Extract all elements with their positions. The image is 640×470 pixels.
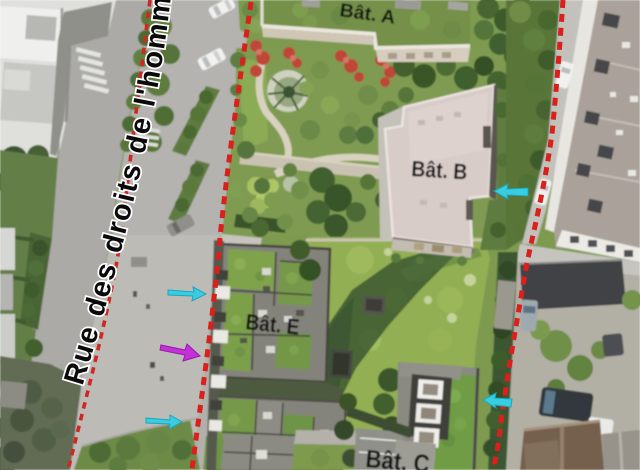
- svg-text:Bât. B: Bât. B: [411, 156, 468, 184]
- svg-text:Bât. C: Bât. C: [364, 445, 430, 470]
